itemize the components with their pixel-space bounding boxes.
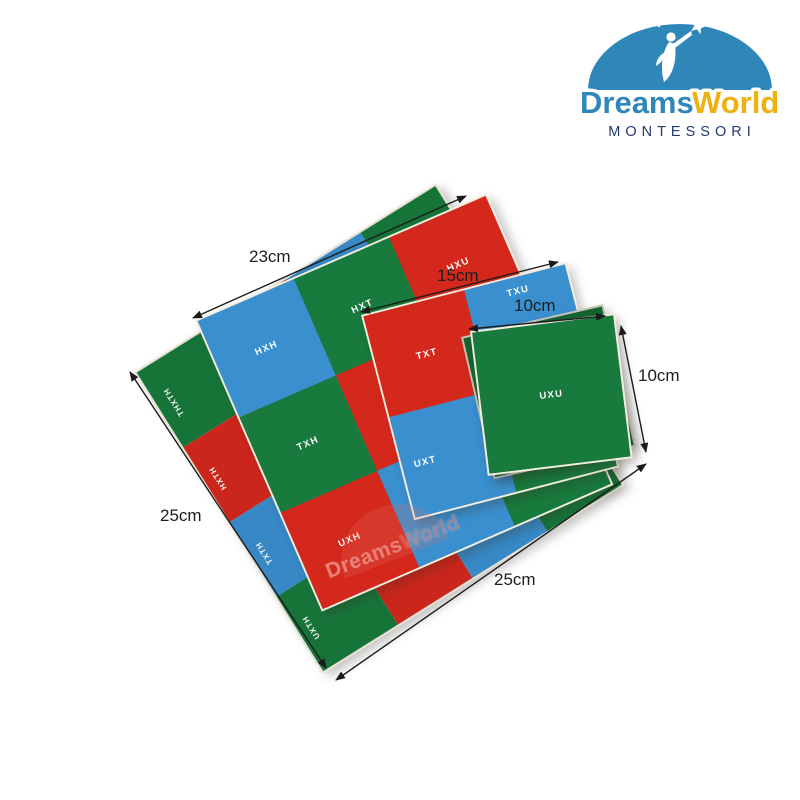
dimension-label-10cm-right: 10cm [638,366,680,386]
dimension-label-10cm-top: 10cm [514,296,556,316]
dimension-label-23cm: 23cm [249,247,291,267]
sparkle-icon [658,25,660,27]
dimension-label-25cm-left: 25cm [160,506,202,526]
logo-dome [588,24,772,90]
dimension-label-25cm-bottom: 25cm [494,570,536,590]
logo-text-world: World [692,85,779,120]
brand-logo: Dreams World MONTESSORI [570,8,795,143]
logo-text-dreams: Dreams [580,85,694,120]
checker-board-10cm: UXU [470,313,633,476]
sparkle-icon [683,18,686,21]
dimension-label-15cm: 15cm [437,266,479,286]
product-photo: THXTH THXU HXTH TXTH UXTH HXH HXT HXU TX… [0,0,800,800]
logo-subtitle: MONTESSORI [608,124,755,140]
cell-uxu: UXU [472,315,630,473]
